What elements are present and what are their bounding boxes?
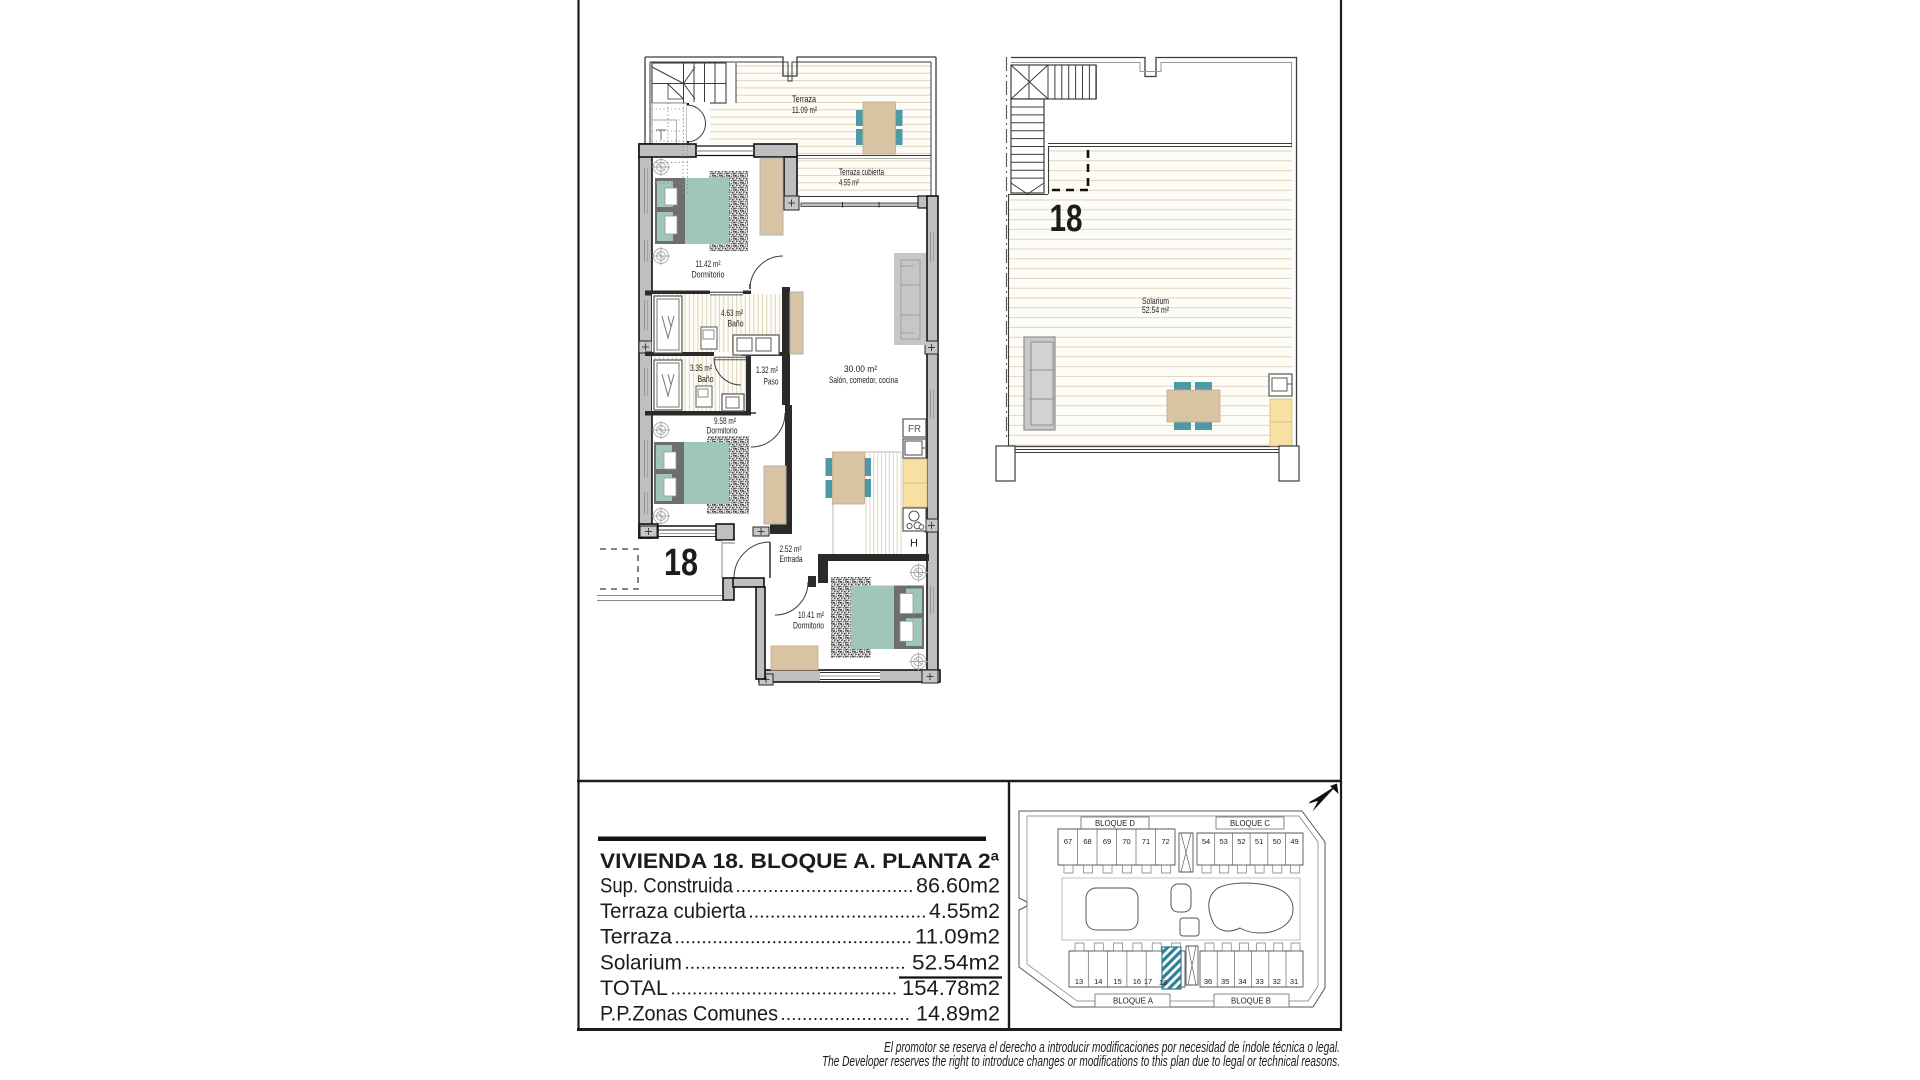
svg-text:49: 49 — [1290, 837, 1298, 846]
svg-text:32: 32 — [1273, 977, 1281, 986]
svg-text:70: 70 — [1122, 837, 1130, 846]
svg-text:Entrada: Entrada — [780, 554, 803, 565]
svg-text:10.41 m²: 10.41 m² — [798, 610, 824, 621]
svg-text:Solarium: Solarium — [600, 951, 682, 974]
svg-text:Terraza cubierta: Terraza cubierta — [600, 900, 746, 923]
svg-text:13: 13 — [1075, 977, 1083, 986]
svg-text:15: 15 — [1113, 977, 1121, 986]
svg-text:4.55m2: 4.55m2 — [929, 900, 1000, 923]
svg-text:BLOQUE B: BLOQUE B — [1231, 997, 1271, 1006]
svg-text:4.63 m²: 4.63 m² — [721, 308, 743, 319]
svg-text:51: 51 — [1255, 837, 1263, 846]
svg-text:11.42 m²: 11.42 m² — [696, 259, 721, 270]
svg-text:BLOQUE D: BLOQUE D — [1095, 819, 1135, 828]
svg-text:52.54m2: 52.54m2 — [912, 951, 1000, 974]
svg-text:33: 33 — [1255, 977, 1263, 986]
svg-text:16: 16 — [1133, 977, 1141, 986]
svg-text:BLOQUE C: BLOQUE C — [1230, 819, 1270, 828]
svg-text:Terraza: Terraza — [600, 926, 672, 949]
svg-text:BLOQUE A: BLOQUE A — [1113, 997, 1154, 1006]
svg-text:TOTAL: TOTAL — [600, 977, 668, 1000]
svg-text:Dormitorio: Dormitorio — [692, 270, 725, 281]
svg-text:1.32 m²: 1.32 m² — [756, 365, 778, 376]
svg-text:18: 18 — [664, 542, 698, 584]
svg-text:52.54 m²: 52.54 m² — [1142, 305, 1169, 316]
svg-text:67: 67 — [1064, 837, 1072, 846]
svg-text:14.89m2: 14.89m2 — [916, 1003, 1000, 1026]
svg-text:4.55 m²: 4.55 m² — [839, 178, 859, 189]
svg-text:Dormitorio: Dormitorio — [793, 621, 824, 632]
svg-text:71: 71 — [1142, 837, 1150, 846]
svg-text:18: 18 — [1050, 198, 1083, 240]
svg-text:P.P.Zonas Comunes: P.P.Zonas Comunes — [600, 1003, 778, 1026]
svg-text:Sup. Construida: Sup. Construida — [600, 875, 733, 898]
svg-text:31: 31 — [1290, 977, 1298, 986]
svg-text:Paso: Paso — [764, 377, 779, 388]
svg-text:11.09 m²: 11.09 m² — [792, 105, 817, 116]
svg-text:Baño: Baño — [698, 374, 714, 385]
svg-text:Salón, comedor, cocina: Salón, comedor, cocina — [829, 375, 898, 386]
svg-text:Baño: Baño — [728, 319, 744, 330]
svg-text:17: 17 — [1144, 977, 1152, 986]
svg-text:30.00 m²: 30.00 m² — [844, 364, 877, 375]
svg-text:69: 69 — [1103, 837, 1111, 846]
svg-text:86.60m2: 86.60m2 — [916, 875, 1000, 898]
svg-text:The Developer reserves the rig: The Developer reserves the right to intr… — [822, 1053, 1340, 1070]
svg-text:Dormitorio: Dormitorio — [707, 426, 738, 437]
svg-text:H: H — [910, 538, 918, 550]
svg-text:52: 52 — [1237, 837, 1245, 846]
svg-text:53: 53 — [1220, 837, 1228, 846]
svg-text:72: 72 — [1161, 837, 1169, 846]
svg-text:54: 54 — [1202, 837, 1210, 846]
svg-text:3.35 m²: 3.35 m² — [690, 363, 712, 374]
svg-text:18: 18 — [1159, 978, 1167, 987]
svg-text:Terraza: Terraza — [792, 94, 817, 105]
svg-text:34: 34 — [1238, 977, 1246, 986]
svg-text:14: 14 — [1094, 977, 1102, 986]
svg-text:68: 68 — [1083, 837, 1091, 846]
svg-text:FR: FR — [908, 424, 921, 435]
svg-text:50: 50 — [1273, 837, 1281, 846]
svg-text:154.78m2: 154.78m2 — [902, 977, 1000, 1000]
svg-text:36: 36 — [1204, 977, 1212, 986]
svg-text:Terraza cubierta: Terraza cubierta — [839, 167, 884, 178]
svg-text:11.09m2: 11.09m2 — [915, 926, 1000, 949]
svg-text:VIVIENDA 18. BLOQUE A. PLANTA: VIVIENDA 18. BLOQUE A. PLANTA 2ª — [600, 849, 999, 873]
svg-text:35: 35 — [1221, 977, 1229, 986]
